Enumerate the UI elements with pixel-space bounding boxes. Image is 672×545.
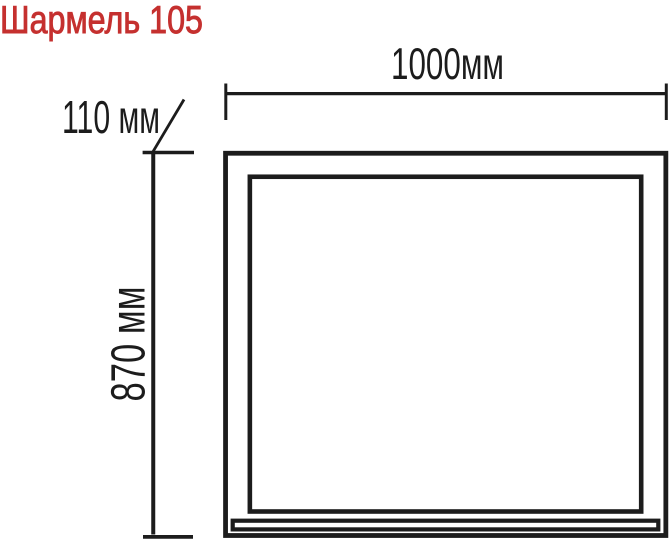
svg-text:Шармель 105: Шармель 105 xyxy=(0,0,203,42)
svg-text:870 мм: 870 мм xyxy=(103,287,156,402)
svg-text:110 мм: 110 мм xyxy=(62,91,160,143)
svg-text:1000мм: 1000мм xyxy=(391,40,504,89)
